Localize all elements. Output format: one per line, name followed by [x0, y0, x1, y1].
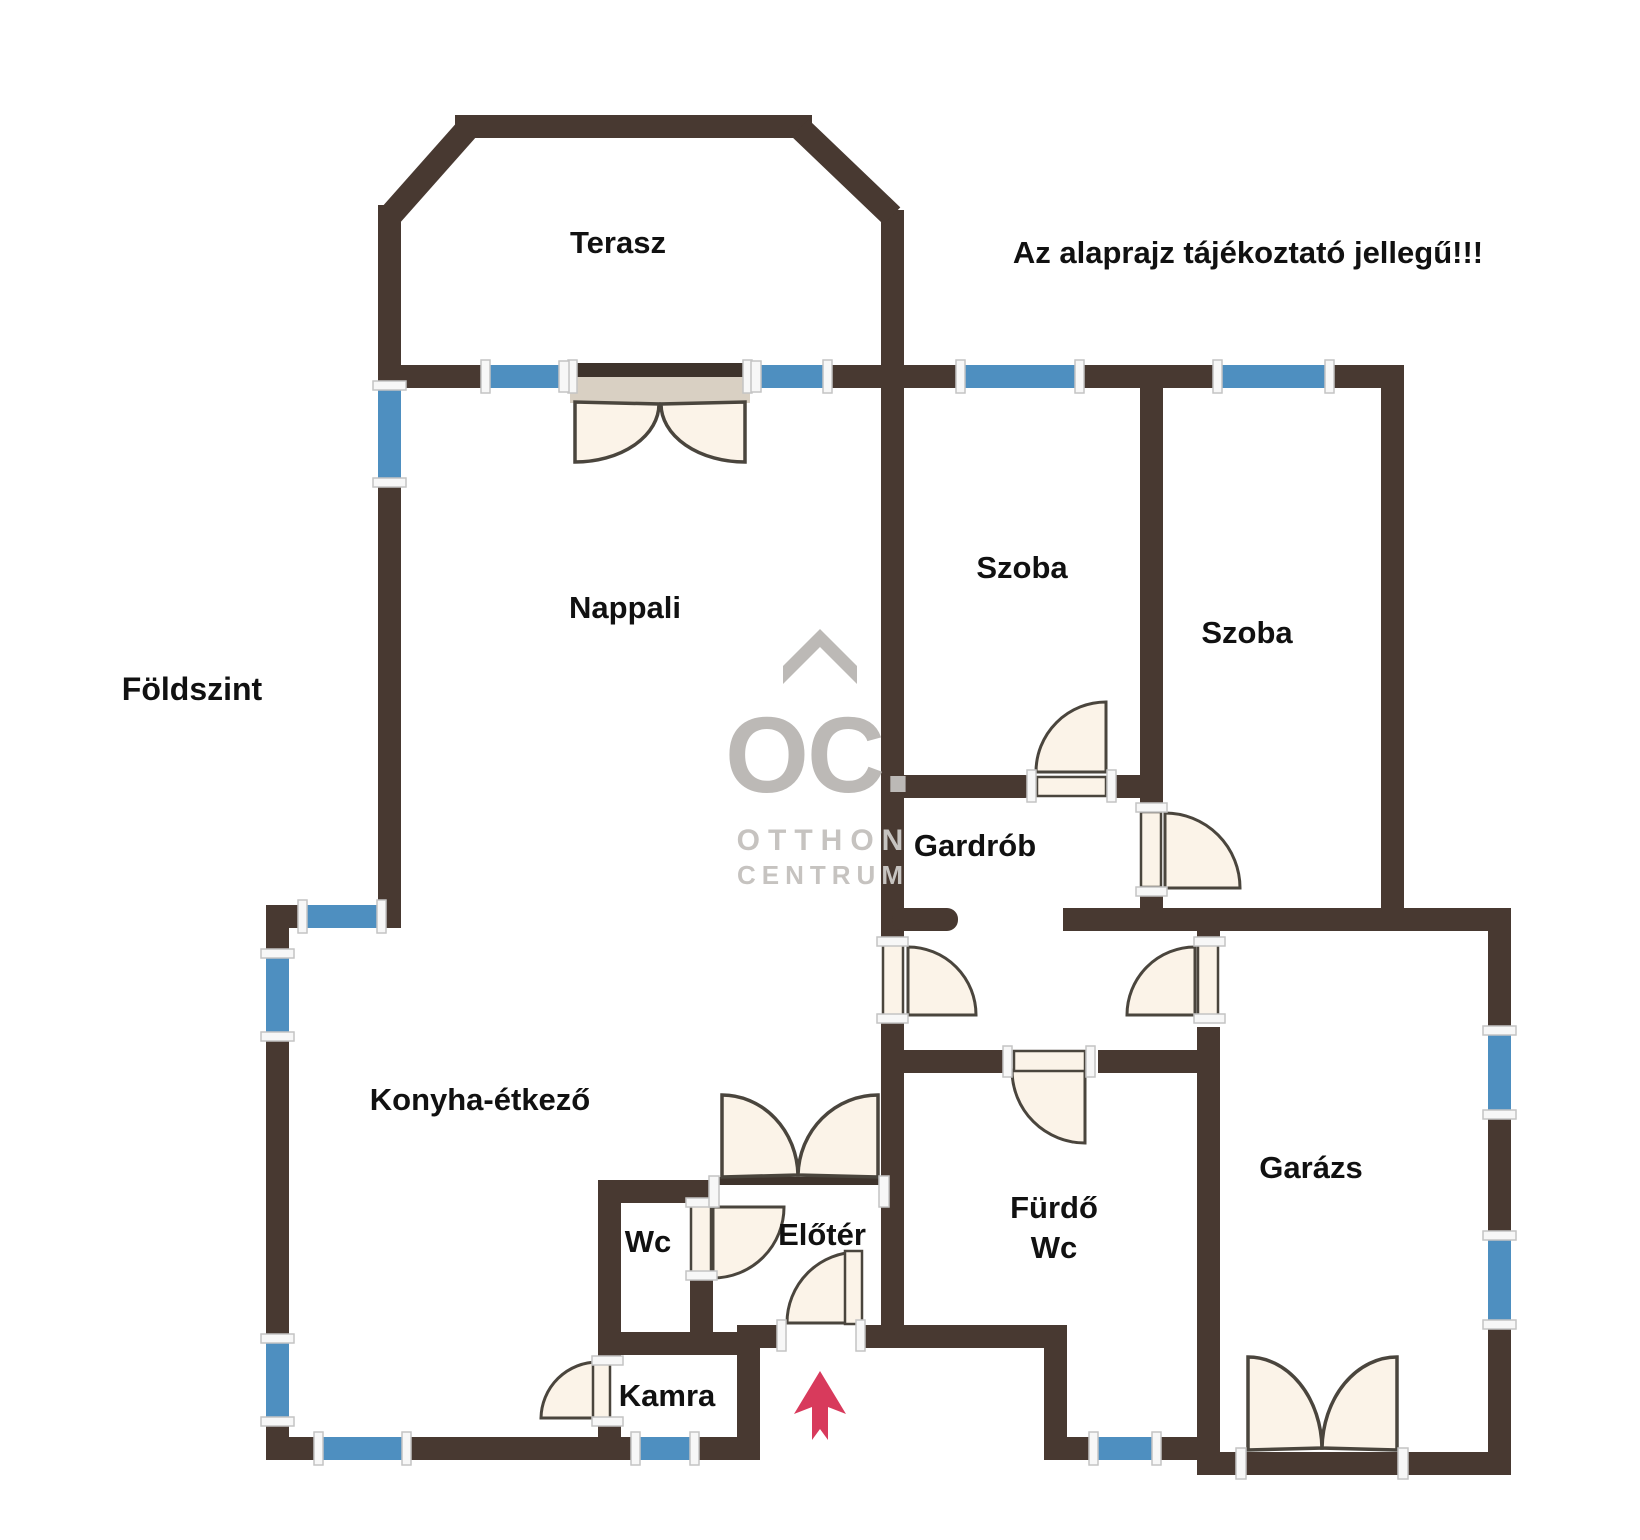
door-leaf — [845, 1251, 862, 1324]
door-swing-arc — [1036, 702, 1106, 772]
room-label-furdo-line2: Wc — [1031, 1230, 1078, 1265]
wall-segment — [1197, 1027, 1220, 1475]
double-door-leaf-arc — [661, 402, 745, 462]
floorplan-page: OC. OTTHON CENTRUM Földszint Az alaprajz… — [0, 0, 1640, 1540]
window-cap — [261, 1417, 294, 1426]
door-leaf — [1037, 777, 1106, 796]
window — [1488, 1035, 1511, 1110]
door-swing-arc — [1165, 813, 1240, 888]
window-cap — [261, 1032, 294, 1041]
terrace-diagonal-wall — [390, 128, 468, 216]
logo-monogram: OC. — [725, 694, 911, 815]
wall-segment — [1488, 1110, 1511, 1240]
door-frame-cap — [877, 1014, 908, 1023]
wall-segment — [860, 1325, 1067, 1348]
door-frame-cap — [877, 937, 908, 946]
wall-segment — [1140, 388, 1163, 812]
window — [965, 365, 1075, 388]
window — [378, 390, 401, 478]
window-cap — [690, 1432, 699, 1465]
room-label-terasz: Terasz — [570, 225, 666, 260]
door-frame-cap — [1136, 887, 1167, 896]
room-labels: Földszint Az alaprajz tájékoztató jelleg… — [122, 225, 1483, 1413]
window-cap — [1075, 360, 1084, 393]
wall-segment — [737, 1355, 760, 1460]
door-leaf — [1198, 945, 1218, 1015]
window-cap — [402, 1432, 411, 1465]
window — [266, 1343, 289, 1417]
door-leaf — [883, 945, 903, 1015]
door-frame-cap — [751, 361, 761, 392]
room-label-wc: Wc — [625, 1224, 672, 1259]
wall-segment — [1098, 1050, 1220, 1073]
entrance-arrow-icon — [794, 1371, 846, 1440]
door-frame-cap — [686, 1271, 717, 1280]
room-label-garazs: Garázs — [1259, 1150, 1362, 1185]
room-label-szoba-2: Szoba — [1201, 615, 1293, 650]
room-label-konyha: Konyha-étkező — [370, 1082, 590, 1117]
double-door-leaf-arc — [798, 1095, 878, 1177]
door-swing-arc — [908, 947, 976, 1015]
room-label-furdo-line1: Fürdő — [1010, 1190, 1098, 1225]
door-frame-cap — [1194, 1014, 1225, 1023]
wall-segment — [1075, 365, 1222, 388]
door-frame-cap — [856, 1320, 865, 1351]
window — [307, 905, 377, 928]
door-frame-cap — [1086, 1046, 1095, 1077]
door-leaf — [691, 1205, 711, 1276]
wall-segment — [455, 115, 812, 138]
window-cap — [1213, 360, 1222, 393]
window — [752, 365, 823, 388]
logo-text-centrum: CENTRUM — [737, 860, 909, 890]
door-frame-cap — [709, 1176, 719, 1207]
wall-segment — [892, 908, 958, 931]
room-label-szoba-1: Szoba — [976, 550, 1068, 585]
floor-title: Földszint — [122, 671, 263, 707]
window — [1098, 1437, 1152, 1460]
window-cap — [956, 360, 965, 393]
terrace-diagonal-wall — [800, 128, 892, 216]
door-swing-arc — [541, 1362, 598, 1418]
door-frame-cap — [1107, 770, 1116, 802]
window-cap — [1483, 1231, 1516, 1240]
wall-segment — [823, 365, 965, 388]
door-header — [566, 363, 754, 377]
window-cap — [481, 360, 490, 393]
room-label-eloter: Előtér — [778, 1217, 866, 1252]
door-header-band — [570, 377, 750, 403]
wall-segment — [598, 1332, 760, 1355]
window — [1222, 365, 1325, 388]
door-frame-cap — [1398, 1448, 1408, 1479]
window-cap — [1152, 1432, 1161, 1465]
door-frame-cap — [777, 1320, 786, 1351]
wall-segment — [737, 1325, 783, 1348]
room-label-nappali: Nappali — [569, 590, 681, 625]
window — [490, 365, 568, 388]
window — [640, 1437, 690, 1460]
wall-segment — [378, 478, 401, 928]
room-label-gardrob: Gardrób — [914, 828, 1036, 863]
disclaimer-note: Az alaprajz tájékoztató jellegű!!! — [1013, 235, 1483, 270]
window — [323, 1437, 402, 1460]
window-cap — [314, 1432, 323, 1465]
window-cap — [373, 381, 406, 390]
window — [266, 958, 289, 1032]
wall-segment — [1488, 908, 1511, 1035]
window-cap — [261, 949, 294, 958]
window-cap — [1483, 1320, 1516, 1329]
window-cap — [823, 360, 832, 393]
door-frame-cap — [1136, 803, 1167, 812]
window-cap — [1483, 1110, 1516, 1119]
room-label-kamra: Kamra — [619, 1378, 716, 1413]
door-frame-cap — [592, 1417, 623, 1426]
door-frame-cap — [1194, 937, 1225, 946]
window — [1488, 1240, 1511, 1320]
wall-segment — [1381, 365, 1404, 931]
door-leaf — [1141, 812, 1161, 887]
door-swing-arc — [1012, 1070, 1085, 1143]
window-cap — [1483, 1026, 1516, 1035]
window-cap — [261, 1334, 294, 1343]
wall-segment — [892, 1050, 1012, 1073]
window-cap — [377, 900, 386, 933]
double-door-leaf-arc — [1248, 1357, 1322, 1450]
double-door-leaf-arc — [722, 1095, 798, 1177]
window-cap — [373, 478, 406, 487]
door-swing-arc — [1127, 947, 1195, 1015]
door-leaf — [1014, 1051, 1085, 1071]
door-frame-cap — [879, 1176, 889, 1207]
window-cap — [298, 900, 307, 933]
window-cap — [1089, 1432, 1098, 1465]
logo-roof-chevron-icon — [783, 629, 857, 684]
door-swing-arc — [713, 1207, 784, 1278]
door-leaf — [593, 1361, 610, 1418]
logo-text-otthon: OTTHON — [737, 824, 912, 857]
wall-segment — [1488, 1320, 1511, 1475]
double-door-leaf-arc — [1322, 1357, 1397, 1450]
door-frame-cap — [1027, 770, 1036, 802]
window-cap — [1325, 360, 1334, 393]
door-frame-cap — [1003, 1046, 1012, 1077]
wall-segment — [1063, 908, 1511, 931]
door-frame-cap — [592, 1356, 623, 1365]
door-frame-cap — [559, 361, 569, 392]
floorplan-canvas: OC. OTTHON CENTRUM Földszint Az alaprajz… — [0, 0, 1640, 1540]
wall-segment — [266, 1032, 289, 1343]
window-cap — [631, 1432, 640, 1465]
door-frame-cap — [1236, 1448, 1246, 1479]
double-door-leaf-arc — [575, 402, 659, 462]
